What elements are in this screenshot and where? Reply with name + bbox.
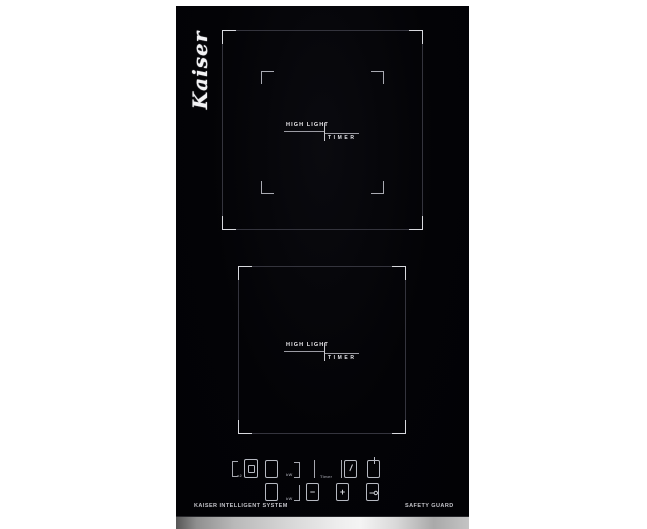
dual-zone-icon	[248, 465, 255, 473]
lower-zone-select-button	[265, 483, 278, 501]
dual-zone-label: x2	[237, 473, 242, 478]
corner-mark	[371, 71, 384, 84]
timer-section-label: Timer	[320, 474, 332, 479]
dual-zone-button	[244, 459, 258, 478]
timer-label: TIMER	[328, 135, 357, 141]
panel-divider	[341, 460, 342, 478]
corner-mark	[261, 181, 274, 194]
lower-zone-label: HIGH LIGHT TIMER	[284, 342, 362, 366]
corner-mark	[222, 30, 236, 44]
upper-zone-select-button	[265, 460, 278, 478]
corner-mark	[409, 216, 423, 230]
product-photo-canvas: { "product": { "brand": "Kaiser" }, "zon…	[0, 0, 647, 529]
clock-icon	[345, 461, 358, 479]
divider-line	[284, 131, 324, 132]
brand-logo: Kaiser	[188, 31, 212, 109]
upper-zone-label: HIGH LIGHT TIMER	[284, 122, 362, 146]
right-bracket-mark	[294, 462, 300, 478]
upper-zone-power-label: kW	[286, 472, 293, 477]
child-lock-button	[366, 483, 379, 501]
key-lock-icon	[367, 484, 380, 502]
lower-zone-power-label: kW	[286, 496, 293, 501]
bottom-bracket-mark	[294, 485, 300, 501]
timer-button	[344, 460, 357, 478]
corner-mark	[261, 71, 274, 84]
divider-line	[284, 351, 324, 352]
hob-device: Kaiser HIGH LIGHT TIMER HIGH LIGHT TIMER	[176, 6, 469, 529]
corner-mark	[392, 420, 406, 434]
corner-mark	[409, 30, 423, 44]
divider-line	[325, 353, 359, 354]
highlight-label: HIGH LIGHT	[286, 122, 329, 128]
corner-mark	[222, 216, 236, 230]
intelligent-system-label: KAISER INTELLIGENT SYSTEM	[194, 503, 288, 509]
corner-mark	[238, 420, 252, 434]
divider-tick	[324, 123, 325, 141]
highlight-label: HIGH LIGHT	[286, 342, 329, 348]
corner-mark	[371, 181, 384, 194]
corner-mark	[392, 266, 406, 280]
plus-icon: +	[337, 484, 348, 500]
divider-line	[325, 133, 359, 134]
timer-label: TIMER	[328, 355, 357, 361]
corner-mark	[238, 266, 252, 280]
minus-button: −	[306, 483, 319, 501]
power-button	[367, 460, 380, 478]
power-icon	[374, 457, 375, 464]
divider-tick	[324, 343, 325, 361]
plus-button: +	[336, 483, 349, 501]
panel-divider	[314, 460, 315, 478]
safety-guard-label: SAFETY GUARD	[405, 503, 454, 509]
minus-icon: −	[307, 484, 318, 500]
stainless-trim	[176, 516, 469, 529]
